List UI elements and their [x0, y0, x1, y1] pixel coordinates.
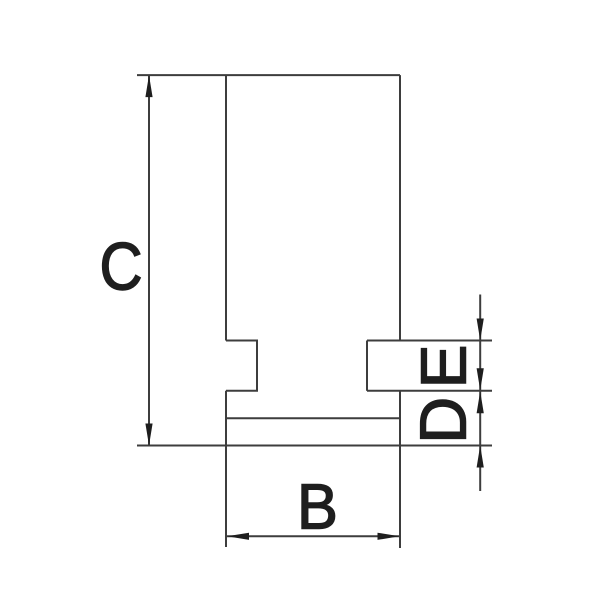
svg-text:D: D — [406, 397, 479, 444]
svg-text:B: B — [297, 471, 338, 543]
svg-text:E: E — [407, 345, 479, 389]
svg-text:C: C — [99, 230, 142, 304]
